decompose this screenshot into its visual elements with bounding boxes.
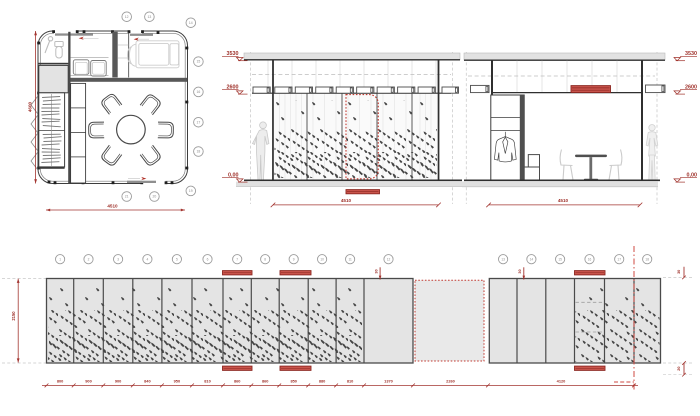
svg-text:18: 18	[645, 257, 649, 261]
svg-text:810: 810	[347, 379, 354, 384]
svg-text:17: 17	[197, 120, 201, 124]
svg-text:30: 30	[375, 269, 379, 273]
svg-text:12: 12	[387, 257, 391, 261]
svg-text:840: 840	[144, 379, 151, 384]
svg-text:4120: 4120	[557, 379, 566, 384]
svg-text:21: 21	[125, 195, 129, 199]
svg-text:900: 900	[115, 379, 122, 384]
svg-text:950: 950	[174, 379, 181, 384]
svg-text:11: 11	[348, 257, 352, 261]
svg-text:3: 3	[117, 257, 119, 261]
svg-text:14: 14	[189, 21, 193, 25]
svg-text:10: 10	[320, 257, 324, 261]
svg-text:4: 4	[147, 257, 149, 261]
svg-text:2150: 2150	[11, 311, 16, 321]
svg-text:14: 14	[530, 257, 534, 261]
svg-text:15: 15	[558, 257, 562, 261]
svg-text:4510: 4510	[107, 203, 118, 208]
svg-text:800: 800	[57, 379, 64, 384]
svg-text:1: 1	[59, 257, 61, 261]
svg-text:4600: 4600	[28, 101, 33, 112]
svg-text:900: 900	[85, 379, 92, 384]
svg-text:12: 12	[125, 15, 129, 19]
svg-text:2260: 2260	[446, 379, 455, 384]
svg-text:30: 30	[518, 269, 522, 273]
svg-text:860: 860	[234, 379, 241, 384]
svg-text:16: 16	[588, 257, 592, 261]
svg-text:13: 13	[501, 257, 505, 261]
svg-text:2: 2	[88, 257, 90, 261]
svg-text:5: 5	[176, 257, 178, 261]
svg-text:30: 30	[677, 270, 681, 274]
svg-text:15: 15	[197, 60, 201, 64]
svg-text:8: 8	[264, 257, 266, 261]
svg-text:880: 880	[319, 379, 326, 384]
svg-text:20: 20	[677, 366, 681, 370]
svg-text:4510: 4510	[558, 198, 569, 203]
svg-text:16: 16	[197, 90, 201, 94]
svg-text:6: 6	[207, 257, 209, 261]
svg-text:850: 850	[290, 379, 297, 384]
svg-text:810: 810	[204, 379, 211, 384]
svg-text:17: 17	[617, 257, 621, 261]
svg-text:20: 20	[153, 195, 157, 199]
svg-text:7: 7	[236, 257, 238, 261]
svg-text:18: 18	[197, 150, 201, 154]
svg-text:9: 9	[293, 257, 295, 261]
svg-text:860: 860	[262, 379, 269, 384]
svg-text:19: 19	[189, 189, 193, 193]
svg-text:13: 13	[148, 15, 152, 19]
svg-text:4510: 4510	[341, 198, 352, 203]
svg-text:1370: 1370	[384, 379, 393, 384]
